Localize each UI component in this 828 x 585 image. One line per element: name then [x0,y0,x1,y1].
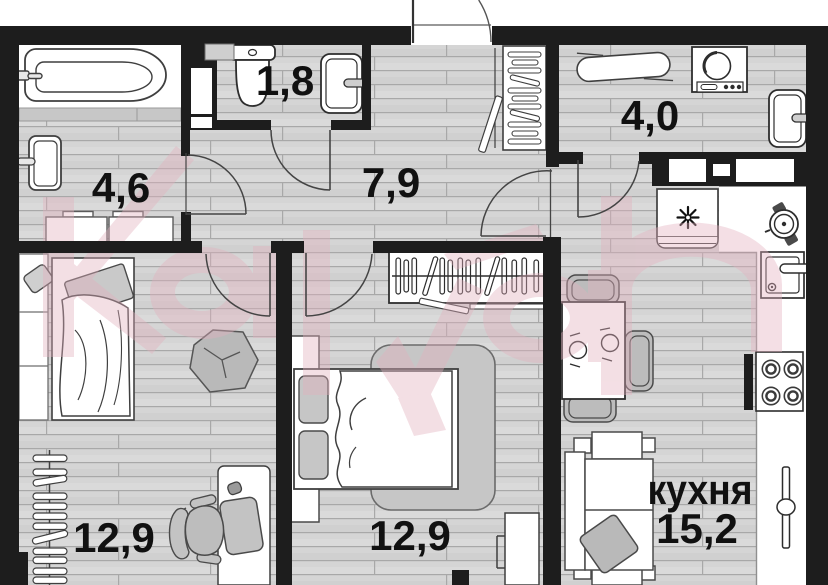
svg-text:4,6: 4,6 [92,164,150,211]
svg-text:12,9: 12,9 [369,512,451,559]
svg-text:7,9: 7,9 [362,159,420,206]
svg-text:15,2: 15,2 [656,505,738,552]
svg-text:4,0: 4,0 [621,92,679,139]
svg-text:1,8: 1,8 [256,57,314,104]
svg-text:12,9: 12,9 [73,514,155,561]
